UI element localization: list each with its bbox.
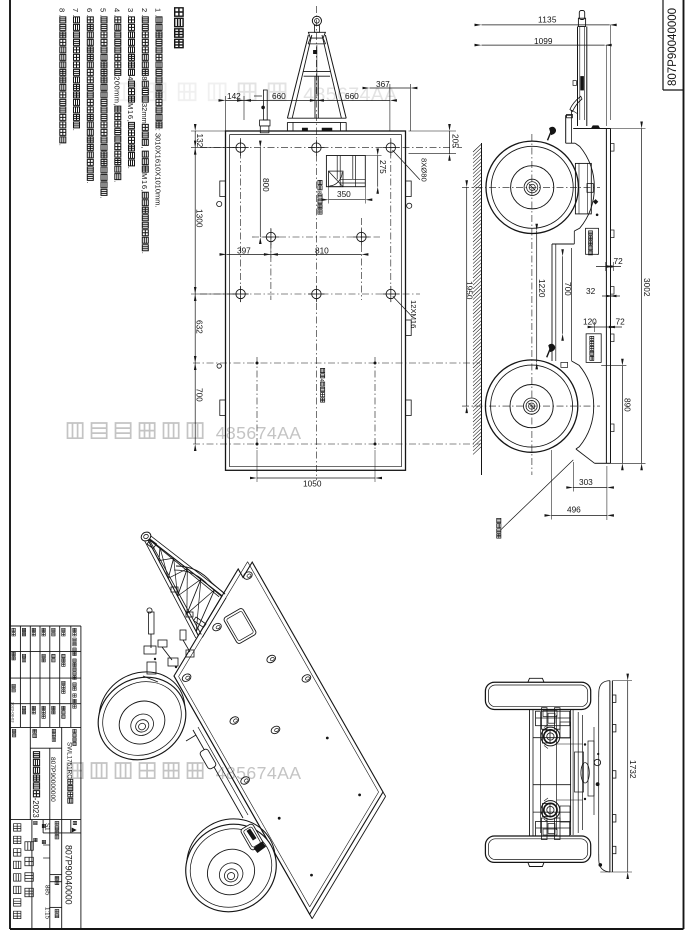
- svg-text:397: 397: [237, 245, 251, 255]
- svg-text:4: 4: [318, 379, 324, 382]
- svg-text:.: .: [99, 196, 108, 198]
- svg-text:.: .: [126, 167, 135, 169]
- svg-text:885: 885: [43, 885, 50, 896]
- svg-text:807P90000000: 807P90000000: [49, 757, 56, 802]
- svg-text:1732: 1732: [628, 760, 638, 779]
- svg-text:1950: 1950: [465, 281, 475, 300]
- svg-text:5.: 5.: [99, 8, 108, 16]
- svg-text:890: 890: [623, 398, 633, 412]
- svg-text:1220: 1220: [537, 279, 547, 298]
- svg-text:7.: 7.: [71, 8, 80, 16]
- svg-text:,: ,: [72, 703, 77, 704]
- svg-text:807P90040000: 807P90040000: [64, 845, 74, 905]
- svg-text:6.: 6.: [85, 8, 94, 16]
- svg-text:700: 700: [195, 388, 205, 402]
- svg-text:32: 32: [586, 286, 596, 296]
- svg-text:.: .: [85, 181, 94, 183]
- svg-text:8.: 8.: [58, 8, 67, 16]
- svg-text:205: 205: [450, 134, 460, 148]
- svg-text:.: .: [58, 144, 67, 146]
- svg-text:275: 275: [378, 160, 388, 174]
- svg-text:660: 660: [345, 91, 359, 101]
- svg-text:1050: 1050: [303, 478, 322, 488]
- svg-text:: 3010X1610X1010mm.: : 3010X1610X1010mm.: [154, 129, 163, 208]
- svg-text:4: 4: [126, 76, 135, 80]
- svg-text:1135: 1135: [538, 14, 557, 24]
- svg-text:807P90040000: 807P90040000: [667, 8, 679, 86]
- svg-text:367: 367: [376, 79, 390, 89]
- svg-text:M16,: M16,: [140, 173, 149, 192]
- svg-text:8: 8: [316, 191, 322, 194]
- svg-text:12XM16: 12XM16: [409, 300, 418, 328]
- svg-text:-2023: -2023: [31, 798, 40, 818]
- svg-text:700: 700: [563, 282, 573, 296]
- svg-text:32mm: 32mm: [140, 103, 149, 124]
- svg-text:1300: 1300: [195, 209, 205, 228]
- svg-text:3002: 3002: [642, 278, 652, 297]
- svg-text:M16,: M16,: [126, 103, 135, 122]
- svg-text:8XØ80: 8XØ80: [419, 158, 428, 182]
- svg-text:1:15: 1:15: [43, 907, 50, 920]
- svg-text:1099: 1099: [534, 36, 553, 46]
- svg-text:142: 142: [227, 91, 241, 101]
- svg-text:,: ,: [72, 698, 77, 699]
- svg-text:.: .: [113, 181, 122, 183]
- svg-text:485674AA: 485674AA: [216, 423, 302, 443]
- svg-text:SWL1751RC: SWL1751RC: [66, 742, 73, 779]
- svg-text:2023-08-03: 2023-08-03: [11, 702, 16, 723]
- svg-text:132: 132: [195, 134, 205, 148]
- svg-text:,: ,: [140, 146, 149, 148]
- svg-text:303: 303: [579, 477, 593, 487]
- svg-text:72: 72: [616, 316, 626, 326]
- svg-text:800: 800: [261, 178, 271, 192]
- svg-text:.: .: [140, 252, 149, 254]
- svg-text:632: 632: [195, 320, 205, 334]
- svg-text:810: 810: [315, 245, 329, 255]
- svg-text:496: 496: [567, 505, 581, 515]
- svg-text:.: .: [71, 129, 80, 131]
- svg-text:3.: 3.: [126, 8, 135, 16]
- svg-text:1.: 1.: [154, 8, 163, 16]
- svg-text:4.: 4.: [113, 8, 122, 16]
- svg-text:8: 8: [140, 76, 149, 80]
- svg-text:660: 660: [272, 91, 286, 101]
- svg-text:120: 120: [583, 316, 597, 326]
- svg-text:2.: 2.: [140, 8, 149, 16]
- svg-text:72: 72: [614, 256, 624, 266]
- svg-text:350: 350: [337, 189, 351, 199]
- svg-text:200mm,: 200mm,: [113, 76, 122, 105]
